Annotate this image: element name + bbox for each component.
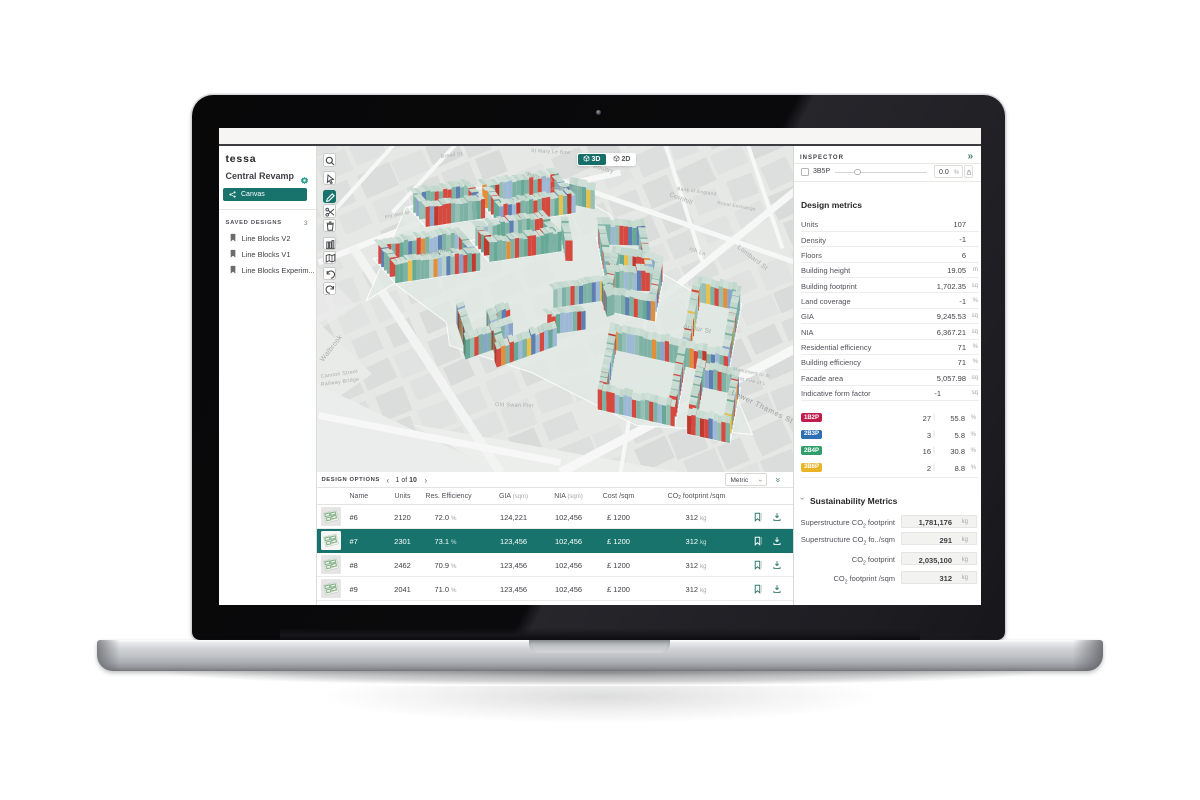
svg-text:London Mith: London Mith [549,186,580,192]
